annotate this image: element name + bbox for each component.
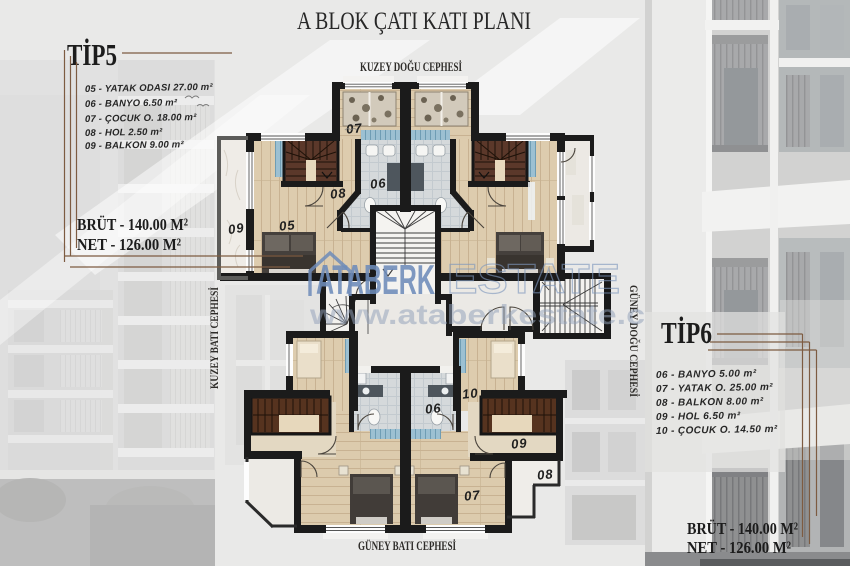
svg-text:ESTATE: ESTATE xyxy=(447,255,620,302)
svg-text:06: 06 xyxy=(369,175,387,192)
svg-text:NET - 126.00 M²: NET - 126.00 M² xyxy=(77,235,181,254)
svg-text:08 - HOL 2.50 m²: 08 - HOL 2.50 m² xyxy=(85,127,163,139)
svg-text:BRÜT - 140.00 M²: BRÜT - 140.00 M² xyxy=(687,519,798,538)
svg-text:09: 09 xyxy=(510,435,528,452)
svg-text:www.ataberkestate.c: www.ataberkestate.c xyxy=(309,299,645,330)
svg-text:05 - YATAK ODASI 27.00 m²: 05 - YATAK ODASI 27.00 m² xyxy=(85,82,214,95)
svg-text:09: 09 xyxy=(227,220,245,237)
svg-text:A BLOK ÇATI KATI PLANI: A BLOK ÇATI KATI PLANI xyxy=(297,8,531,35)
svg-text:10: 10 xyxy=(461,385,479,402)
svg-text:08: 08 xyxy=(329,185,347,202)
svg-text:08 - BALKON 8.00 m²: 08 - BALKON 8.00 m² xyxy=(656,396,764,409)
svg-text:07 - ÇOCUK O. 18.00 m²: 07 - ÇOCUK O. 18.00 m² xyxy=(85,112,197,125)
svg-text:08: 08 xyxy=(536,466,554,483)
svg-text:07 - YATAK O. 25.00 m²: 07 - YATAK O. 25.00 m² xyxy=(656,382,773,395)
svg-text:05: 05 xyxy=(278,217,296,234)
svg-text:07: 07 xyxy=(463,487,481,504)
svg-text:10 - ÇOCUK O. 14.50 m²: 10 - ÇOCUK O. 14.50 m² xyxy=(656,424,778,437)
svg-text:TİP6: TİP6 xyxy=(661,315,712,350)
svg-text:KUZEY BATI CEPHESİ: KUZEY BATI CEPHESİ xyxy=(207,287,221,389)
svg-text:NET - 126.00 M²: NET - 126.00 M² xyxy=(687,538,791,557)
svg-text:BRÜT - 140.00 M²: BRÜT - 140.00 M² xyxy=(77,215,188,234)
svg-text:KUZEY DOĞU CEPHESİ: KUZEY DOĞU CEPHESİ xyxy=(360,60,462,74)
svg-text:06 - BANYO 6.50 m²: 06 - BANYO 6.50 m² xyxy=(85,97,178,110)
svg-text:TİP5: TİP5 xyxy=(67,37,117,72)
svg-text:06: 06 xyxy=(424,400,442,417)
svg-text:06 - BANYO 5.00 m²: 06 - BANYO 5.00 m² xyxy=(656,368,757,381)
svg-text:ATABERK: ATABERK xyxy=(316,256,435,303)
svg-text:GÜNEY BATI CEPHESİ: GÜNEY BATI CEPHESİ xyxy=(358,539,456,553)
svg-text:09 - BALKON 9.00 m²: 09 - BALKON 9.00 m² xyxy=(85,139,185,152)
svg-text:09 - HOL 6.50 m²: 09 - HOL 6.50 m² xyxy=(656,411,741,423)
